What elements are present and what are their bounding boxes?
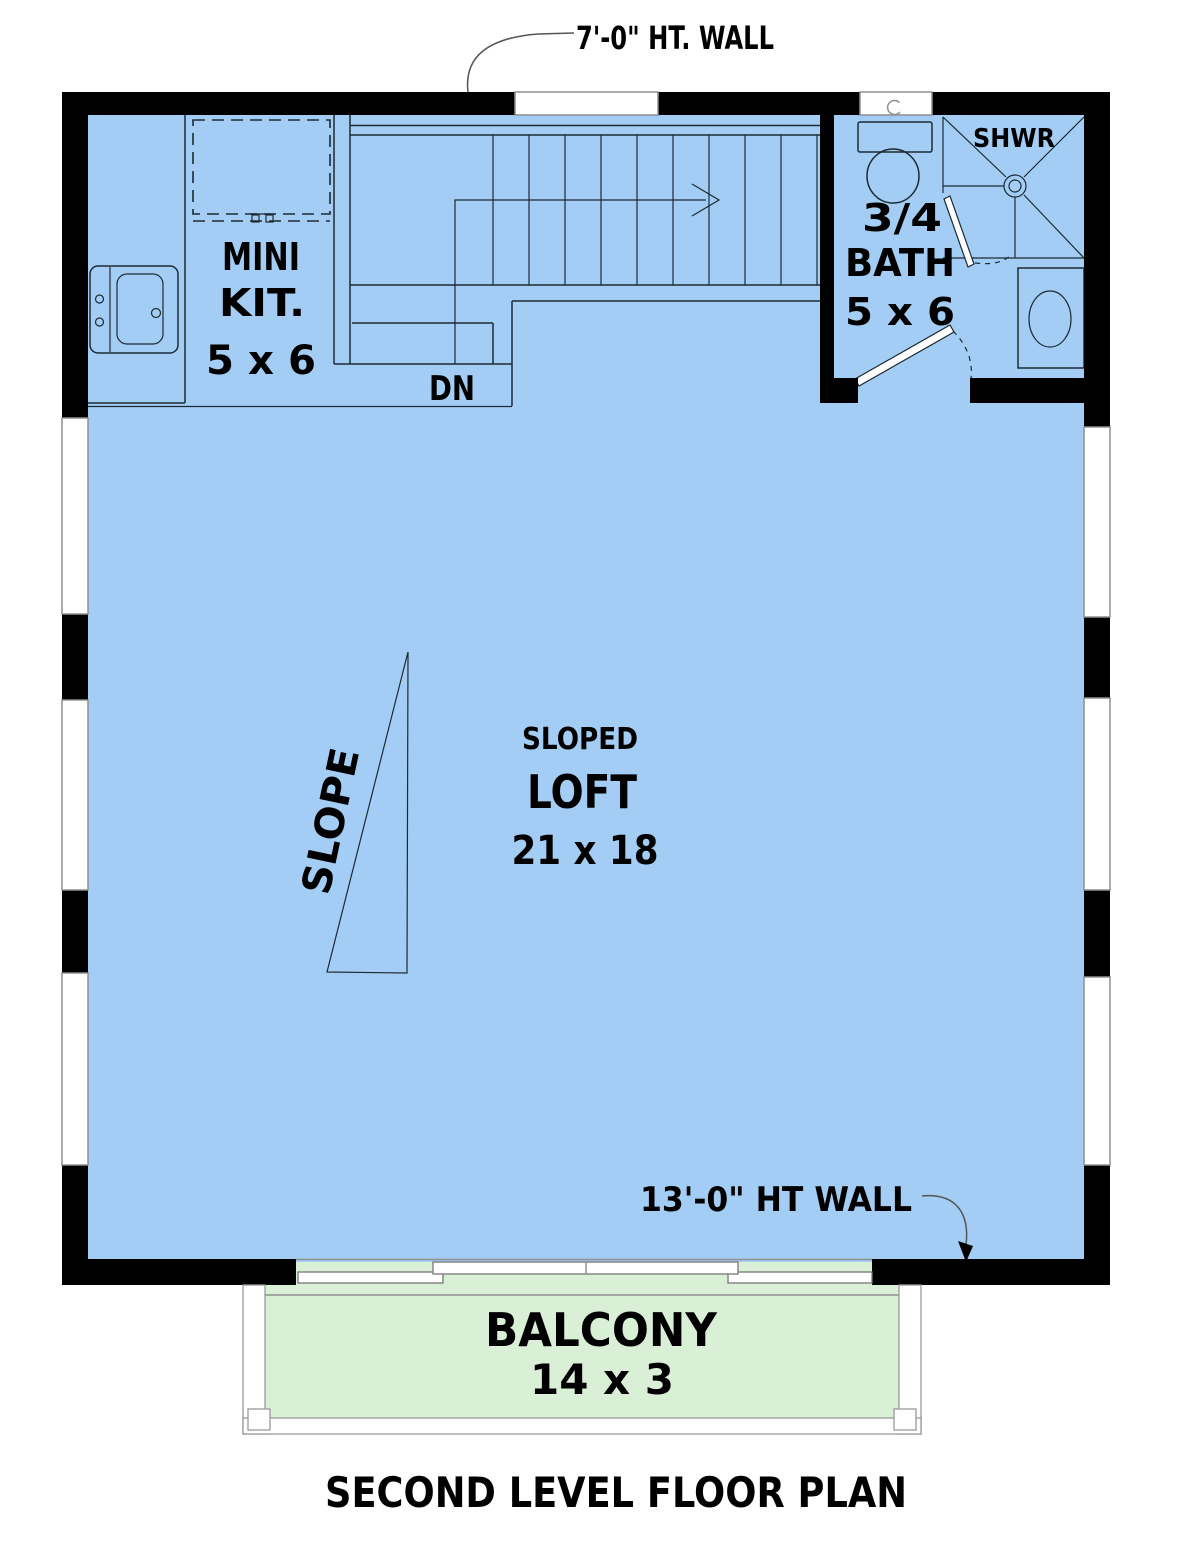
bottom-wall-left <box>62 1259 296 1285</box>
loft-descriptor: SLOPED <box>522 722 638 757</box>
stair-down-label: DN <box>429 369 475 409</box>
right-window-2 <box>1084 698 1110 890</box>
shower-label: SHWR <box>973 124 1055 154</box>
floor-plan-page: MINI KIT. 5 x 6 DN <box>0 0 1200 1555</box>
bath-dimensions: 5 x 6 <box>845 290 955 334</box>
right-window-1 <box>1084 427 1110 617</box>
bath-label-line2: BATH <box>845 241 955 285</box>
top-wall-note: 7'-0" HT. WALL <box>576 19 774 57</box>
balcony-dimensions: 14 x 3 <box>530 1355 674 1404</box>
top-wall-opening <box>515 92 658 115</box>
loft-name: LOFT <box>527 765 638 819</box>
balcony-half-wall-right <box>728 1272 872 1283</box>
left-window-3 <box>62 973 88 1165</box>
kitchen-label-line2: KIT. <box>219 281 305 325</box>
railing-post-left <box>248 1409 270 1430</box>
top-leader-line <box>468 33 574 92</box>
bath-bottom-wall-right <box>970 378 1084 403</box>
floor-plan-drawing: MINI KIT. 5 x 6 DN <box>0 0 1200 1555</box>
railing-bottom <box>243 1418 921 1434</box>
sliding-door-icon <box>433 1262 738 1274</box>
bath-label-line1: 3/4 <box>862 196 942 240</box>
left-window-2 <box>62 700 88 890</box>
loft-dimensions: 21 x 18 <box>512 828 659 874</box>
bottom-wall-note: 13'-0" HT WALL <box>640 1180 912 1220</box>
balcony-name: BALCONY <box>485 1303 718 1357</box>
page-title: SECOND LEVEL FLOOR PLAN <box>325 1468 907 1517</box>
bottom-wall-right <box>872 1259 1110 1285</box>
bath-left-wall <box>820 92 834 403</box>
right-window-3 <box>1084 977 1110 1165</box>
kitchen-dimensions: 5 x 6 <box>206 338 316 384</box>
bath-vent-opening <box>860 92 932 115</box>
left-window-1 <box>62 418 88 614</box>
railing-post-right <box>894 1409 916 1430</box>
bath-bottom-wall-left <box>820 378 858 403</box>
balcony-half-wall-left <box>298 1272 443 1283</box>
kitchen-label-line1: MINI <box>222 235 300 279</box>
